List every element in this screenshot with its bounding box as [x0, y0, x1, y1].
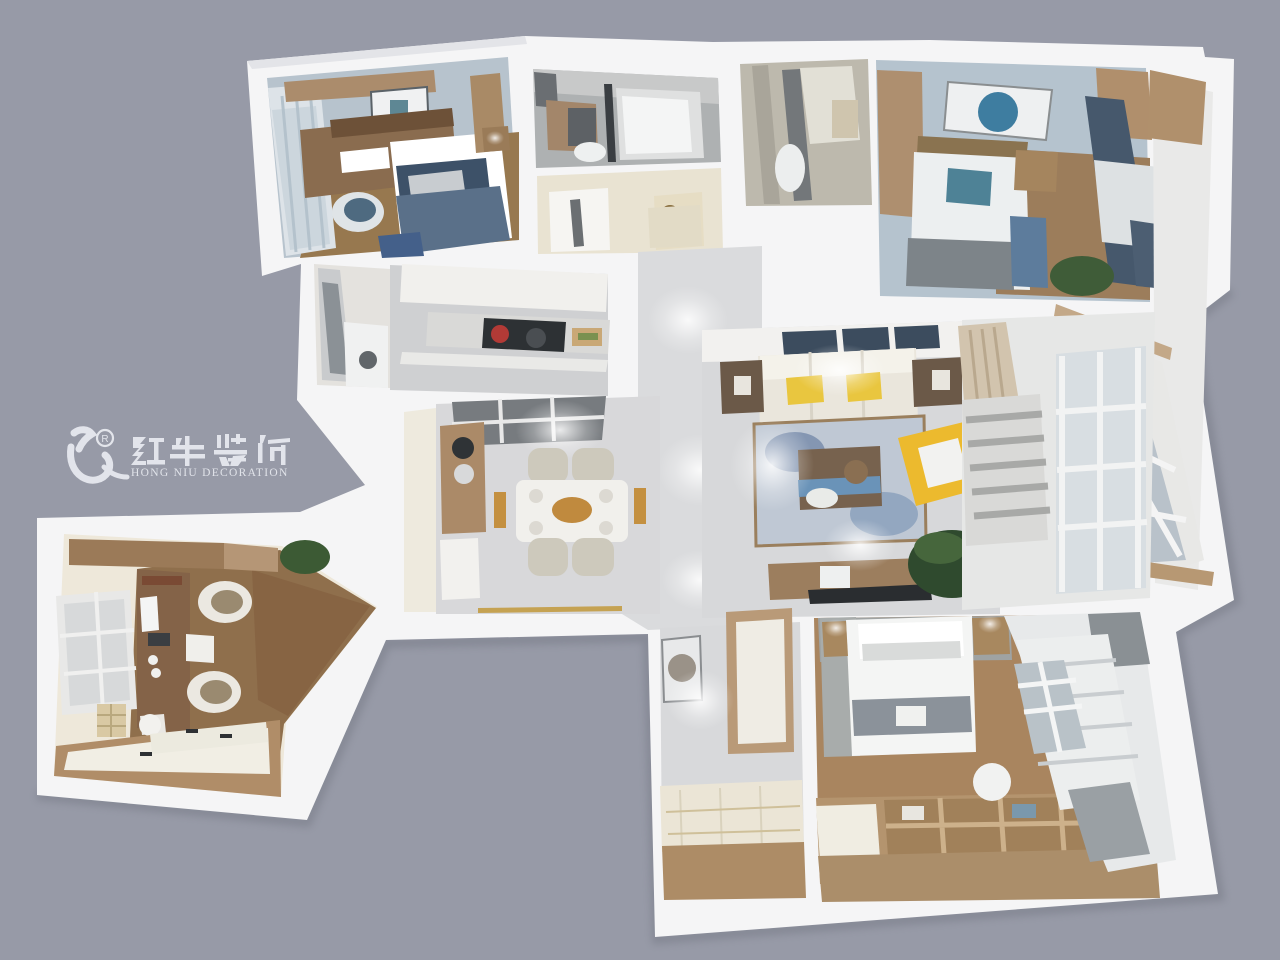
svg-text:HONG NIU DECORATION: HONG NIU DECORATION: [131, 467, 289, 479]
svg-text:R: R: [101, 434, 108, 445]
